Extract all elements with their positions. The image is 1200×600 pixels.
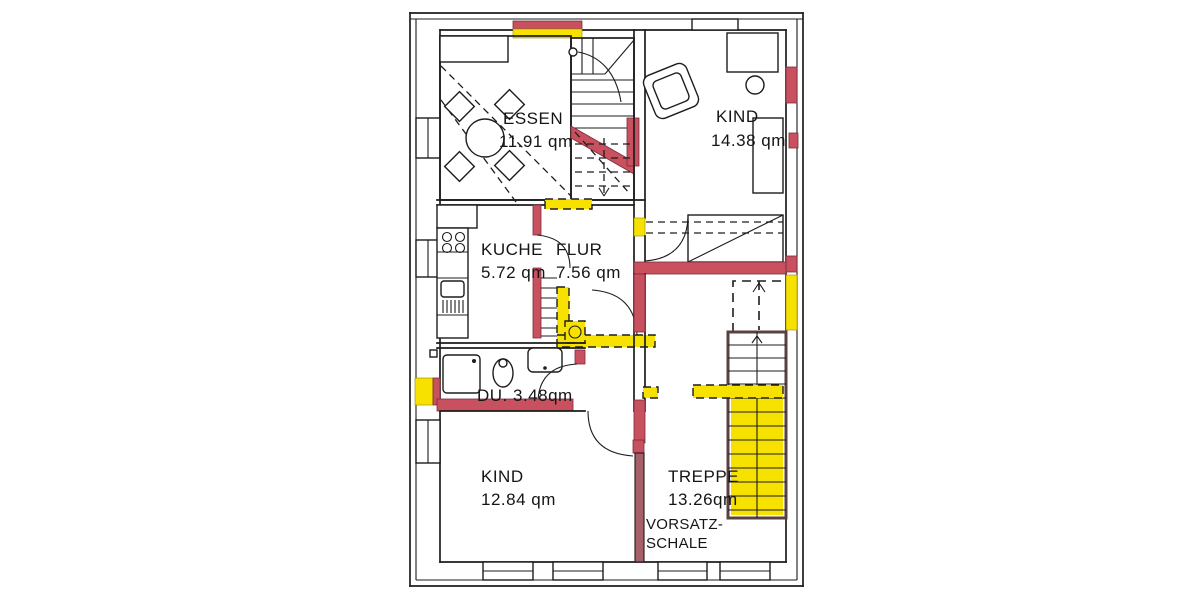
new-wall-red [627,118,639,166]
room-kind-bottom [440,411,644,456]
upper-staircase [569,38,639,200]
wardrobe-icon [727,33,778,72]
door-arc [588,411,633,456]
room-kind-top [634,30,786,274]
stool-icon [746,76,764,94]
kind-top-label: KIND [716,107,759,126]
new-wall-red [789,133,798,148]
vorsatzschale-label-1: VORSATZ- [646,516,723,533]
new-wall-red [634,262,786,274]
demolition-yellow [643,387,658,398]
kueche-area: 5.72 qm [481,263,546,282]
treppe-label: TREPPE [668,467,739,486]
window-icon [692,19,738,30]
essen-area: 11.91 qm [499,132,573,151]
demolition-yellow [545,199,592,209]
new-wall-red [786,67,797,103]
demolition-yellow [786,275,797,330]
demolition-yellow [415,378,433,405]
treppe-area: 13.26qm [668,490,738,509]
vorsatzschale-label-2: SCHALE [646,535,708,552]
new-wall-red [634,274,645,332]
dusche-label: DU. 3.48qm [477,386,573,405]
newel-post [569,48,577,56]
desk-icon [753,118,783,193]
new-wall-red [786,256,797,272]
kind-top-area: 14.38 qm [711,131,786,150]
stair-handrail [578,52,621,102]
door-arc [645,218,688,261]
demolition-yellow [693,385,783,398]
kueche-label: KUCHE [481,240,543,259]
new-wall-red [513,21,582,29]
new-wall-red [634,400,645,443]
door-arc [592,290,637,335]
kind-bottom-area: 12.84 qm [481,490,556,509]
demolition-yellow [634,218,645,236]
down-staircase [541,278,557,336]
toilet-icon [493,359,513,387]
kitchen-unit [437,205,477,338]
duct-column [565,321,585,343]
floor-plan-drawing: ESSEN 11.91 qm KIND 14.38 qm KUCHE 5.72 … [0,0,1200,600]
vorsatzschale-wall [635,453,644,562]
armchair-icon [641,61,701,121]
new-wall-red [533,205,541,235]
new-wall-red [633,440,644,453]
floor-plan-page: ESSEN 11.91 qm KIND 14.38 qm KUCHE 5.72 … [0,0,1200,600]
flur-label: FLUR [556,240,602,259]
sideboard-icon [440,36,508,62]
new-wall-red [571,126,634,174]
new-wall-red [575,350,585,364]
vent-icon [430,350,437,357]
essen-label: ESSEN [503,109,563,128]
kind-bottom-label: KIND [481,467,524,486]
flur-area: 7.56 qm [556,263,621,282]
cabinet-icon [437,205,477,228]
